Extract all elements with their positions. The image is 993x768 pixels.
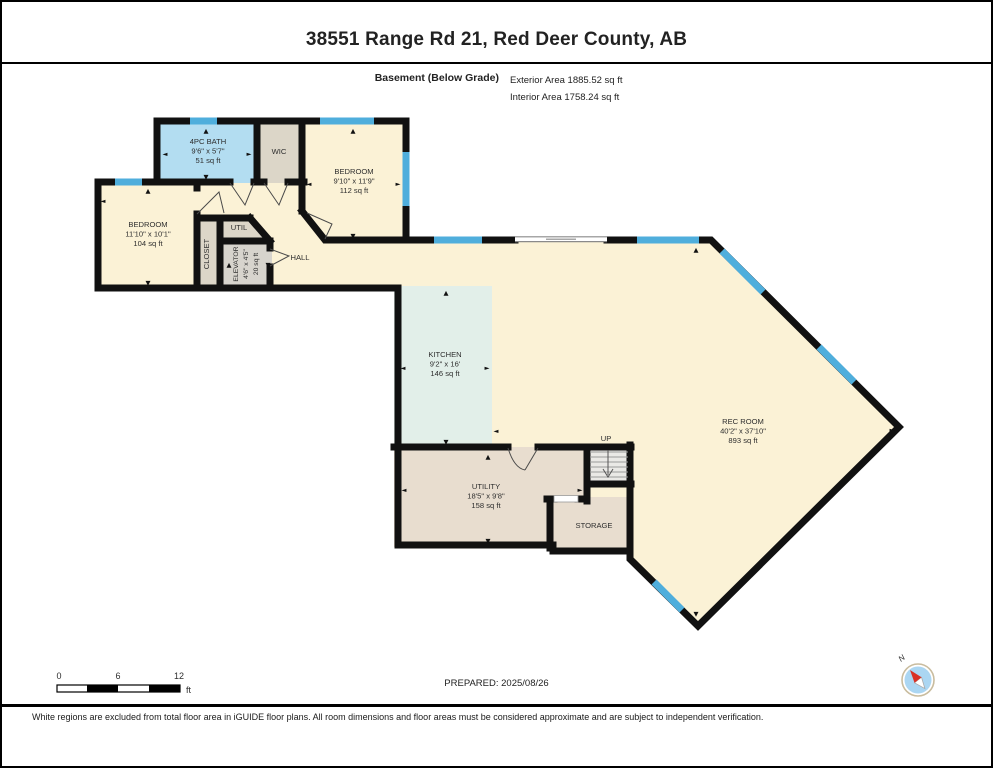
bedroom-left-area: 104 sq ft <box>133 239 163 248</box>
bedroom-left-arrow-up: ▲ <box>146 187 151 195</box>
wic-label: WIC <box>272 147 287 156</box>
footer-divider <box>2 704 991 707</box>
bedroom-right-arrow-left: ◄ <box>307 180 312 188</box>
elevator-arrow-down: ▼ <box>266 261 271 269</box>
kitchen-area: 146 sq ft <box>430 369 460 378</box>
bath-arrow-right: ► <box>247 150 252 158</box>
floorplan-page: 38551 Range Rd 21, Red Deer County, AB B… <box>0 0 993 768</box>
rec-room-dims: 40'2" x 37'10" <box>720 427 766 436</box>
bedroom-right-label: BEDROOM <box>334 167 373 176</box>
bedroom-left-arrow-left: ◄ <box>101 197 106 205</box>
rec-room-area: 893 sq ft <box>728 436 758 445</box>
elevator-dims: 4'6" x 4'5" <box>243 249 250 279</box>
patio-door-mask <box>515 233 607 242</box>
rec-arrow-right: ► <box>890 426 895 434</box>
utility-area: 158 sq ft <box>471 501 501 510</box>
utility-arrow-right: ► <box>578 486 583 494</box>
bath-label: 4PC BATH <box>190 137 227 146</box>
floor-plan: ◄ ► ▲ ▼ ▲ ► ▼ ◄ ▲ ◄ ▼ ▲ ▼ ◄ ► ◄ ▲ ► ▼ ▲ … <box>2 2 993 768</box>
elevator-arrow-up: ▲ <box>227 261 232 269</box>
compass-north-label: N <box>897 653 907 664</box>
storage-door-opening <box>554 496 578 503</box>
utility-arrow-down: ▼ <box>486 537 491 545</box>
util-label: UTIL <box>231 223 247 232</box>
bedroom-left-label: BEDROOM <box>128 220 167 229</box>
rec-arrow-down: ▼ <box>694 610 699 618</box>
elevator-label: ELEVATOR <box>233 246 240 281</box>
storage-label: STORAGE <box>576 521 613 530</box>
compass-icon: N <box>882 646 954 712</box>
kitchen-arrow-right: ► <box>485 364 490 372</box>
bedroom-right-dims: 9'10" x 11'9" <box>333 177 374 186</box>
bath-area: 51 sq ft <box>196 156 222 165</box>
stairs-up-label: UP <box>601 434 612 443</box>
kitchen-arrow-up: ▲ <box>444 289 449 297</box>
closet-label: CLOSET <box>202 238 211 269</box>
bedroom-right-arrow-up: ▲ <box>351 127 356 135</box>
rec-arrow-left-kitchen: ◄ <box>494 427 499 435</box>
bedroom-left-arrow-down: ▼ <box>146 279 151 287</box>
kitchen-arrow-down: ▼ <box>444 438 449 446</box>
prepared-date: PREPARED: 2025/08/26 <box>2 678 991 689</box>
kitchen-dims: 9'2" x 16' <box>430 360 461 369</box>
bath-arrow-down: ▼ <box>204 173 209 181</box>
utility-dims: 18'5" x 9'8" <box>467 492 505 501</box>
bedroom-right-arrow-down: ▼ <box>351 232 356 240</box>
rec-room-label: REC ROOM <box>722 417 764 426</box>
bath-arrow-up: ▲ <box>204 127 209 135</box>
bedroom-right-arrow-right: ► <box>396 180 401 188</box>
bath-arrow-left: ◄ <box>163 150 168 158</box>
patio-door <box>515 233 607 242</box>
bedroom-right-area: 112 sq ft <box>340 186 369 195</box>
kitchen-label: KITCHEN <box>428 350 461 359</box>
footer-disclaimer: White regions are excluded from total fl… <box>32 712 763 722</box>
hall-label: HALL <box>291 253 310 262</box>
elevator-area: 20 sq ft <box>253 253 260 275</box>
utility-label: UTILITY <box>472 482 500 491</box>
kitchen-arrow-left: ◄ <box>401 364 406 372</box>
utility-arrow-up: ▲ <box>486 453 491 461</box>
utility-arrow-left: ◄ <box>402 486 407 494</box>
rec-arrow-up: ▲ <box>694 246 699 254</box>
bath-dims: 9'6" x 5'7" <box>191 147 225 156</box>
bedroom-left-dims: 11'10" x 10'1" <box>125 230 171 239</box>
